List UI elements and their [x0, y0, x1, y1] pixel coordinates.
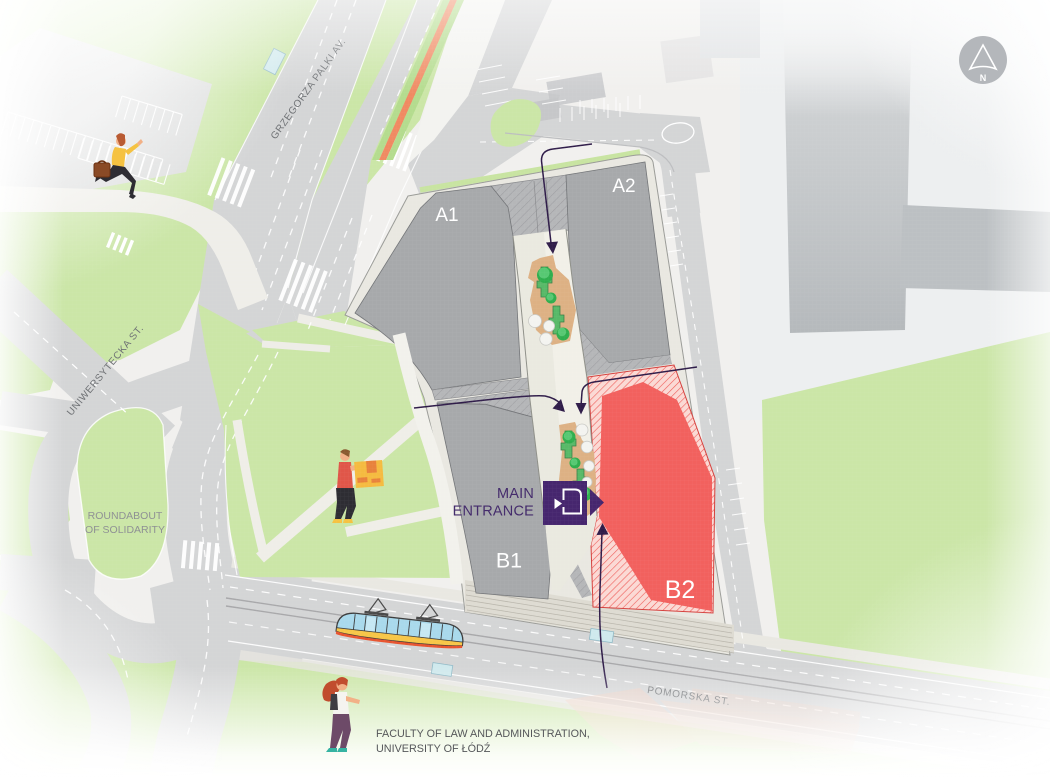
svg-text:N: N [980, 73, 987, 83]
svg-text:UNIVERSITY OF ŁÓDŹ: UNIVERSITY OF ŁÓDŹ [376, 742, 491, 755]
svg-text:FACULTY OF LAW AND ADMINISTRAT: FACULTY OF LAW AND ADMINISTRATION, [376, 728, 590, 740]
